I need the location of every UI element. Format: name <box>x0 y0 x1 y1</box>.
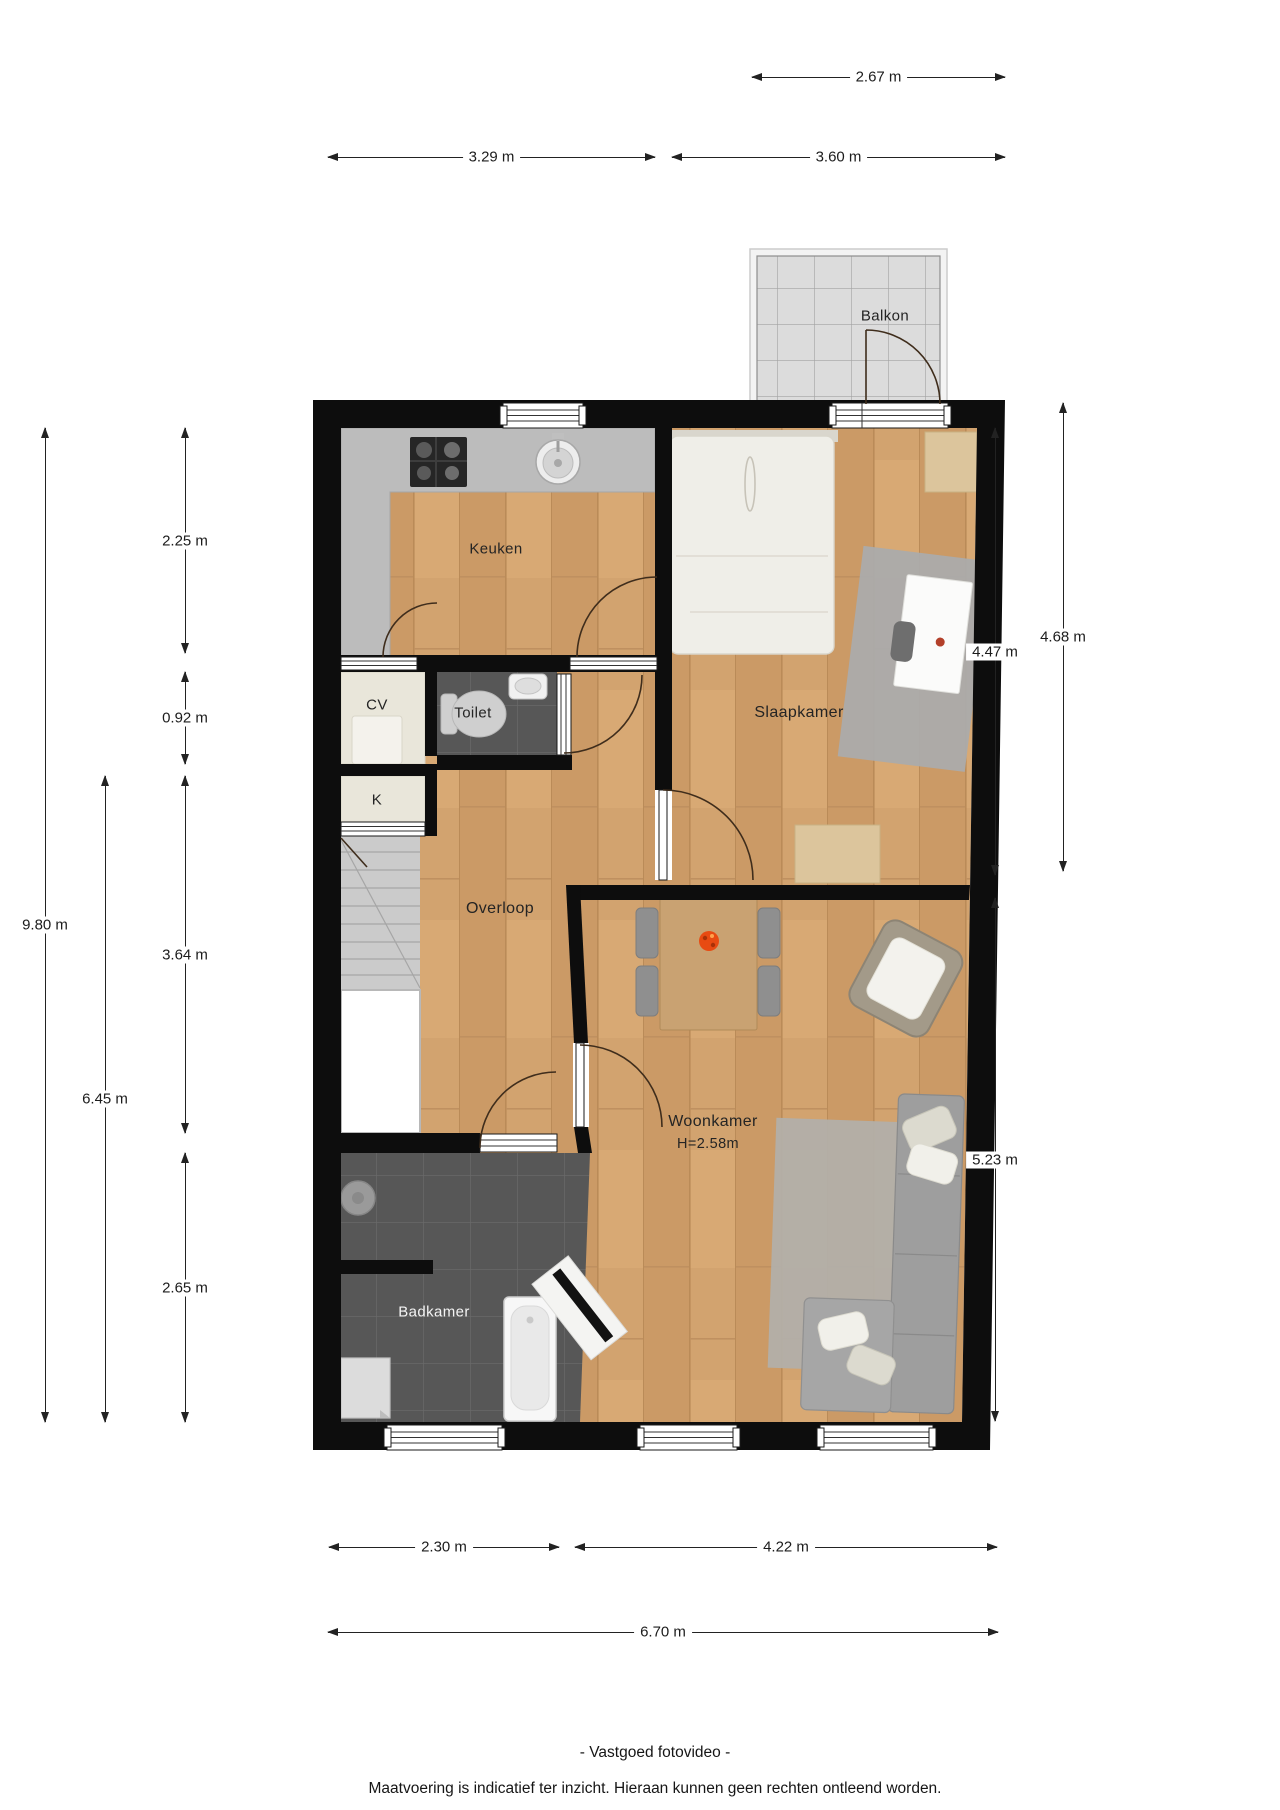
dining-chair <box>758 908 780 958</box>
room-label-woonkamer: Woonkamer <box>668 1113 758 1131</box>
room-label-k: K <box>372 792 382 809</box>
living-window-left <box>637 1425 740 1450</box>
balcony-door-sill <box>829 403 951 428</box>
room-label-overloop: Overloop <box>466 900 534 918</box>
kitchen-door-sill <box>570 657 657 670</box>
slaapkamer-door-opening <box>655 790 672 880</box>
dining-table <box>660 897 757 1030</box>
balcony <box>750 249 947 407</box>
room-label-woonkamer-height: H=2.58m <box>677 1136 739 1152</box>
room-label-balkon: Balkon <box>861 308 909 325</box>
dining-chair <box>636 966 658 1016</box>
footer-disclaimer: Maatvoering is indicatief ter inzicht. H… <box>0 1780 1280 1798</box>
toilet-door-sill <box>557 674 571 755</box>
kitchen-window <box>500 403 586 428</box>
washing-machine <box>341 1358 390 1418</box>
stairwell-void <box>341 990 420 1133</box>
dining-chair <box>758 966 780 1016</box>
sideboard <box>795 825 880 883</box>
living-window-right <box>817 1425 936 1450</box>
bed <box>668 430 838 654</box>
bathroom-window <box>384 1425 505 1450</box>
room-label-keuken: Keuken <box>469 541 522 558</box>
wardrobe <box>925 432 977 492</box>
room-label-slaapkamer: Slaapkamer <box>754 704 843 722</box>
cv-door-sill <box>341 657 417 670</box>
toilet-sink <box>509 674 547 699</box>
bathtub <box>504 1297 556 1421</box>
stove <box>410 437 467 487</box>
k-closet-floor <box>341 776 425 822</box>
woonkamer-door-opening <box>573 1043 589 1127</box>
footer-credit: - Vastgoed fotovideo - <box>0 1744 1280 1762</box>
dining-chair <box>636 908 658 958</box>
room-label-badkamer: Badkamer <box>398 1304 470 1321</box>
cv-boiler <box>352 716 402 764</box>
room-label-toilet: Toilet <box>454 705 491 722</box>
stairs <box>341 836 420 990</box>
floorplan-drawing <box>0 0 1280 1810</box>
table-flowers <box>699 931 719 951</box>
room-label-cv: CV <box>366 697 388 714</box>
k-closet-door-sill <box>341 822 425 836</box>
badkamer-door-sill <box>480 1134 557 1152</box>
floorplan-page: Balkon Keuken CV Toilet K Slaapkamer Ove… <box>0 0 1280 1810</box>
